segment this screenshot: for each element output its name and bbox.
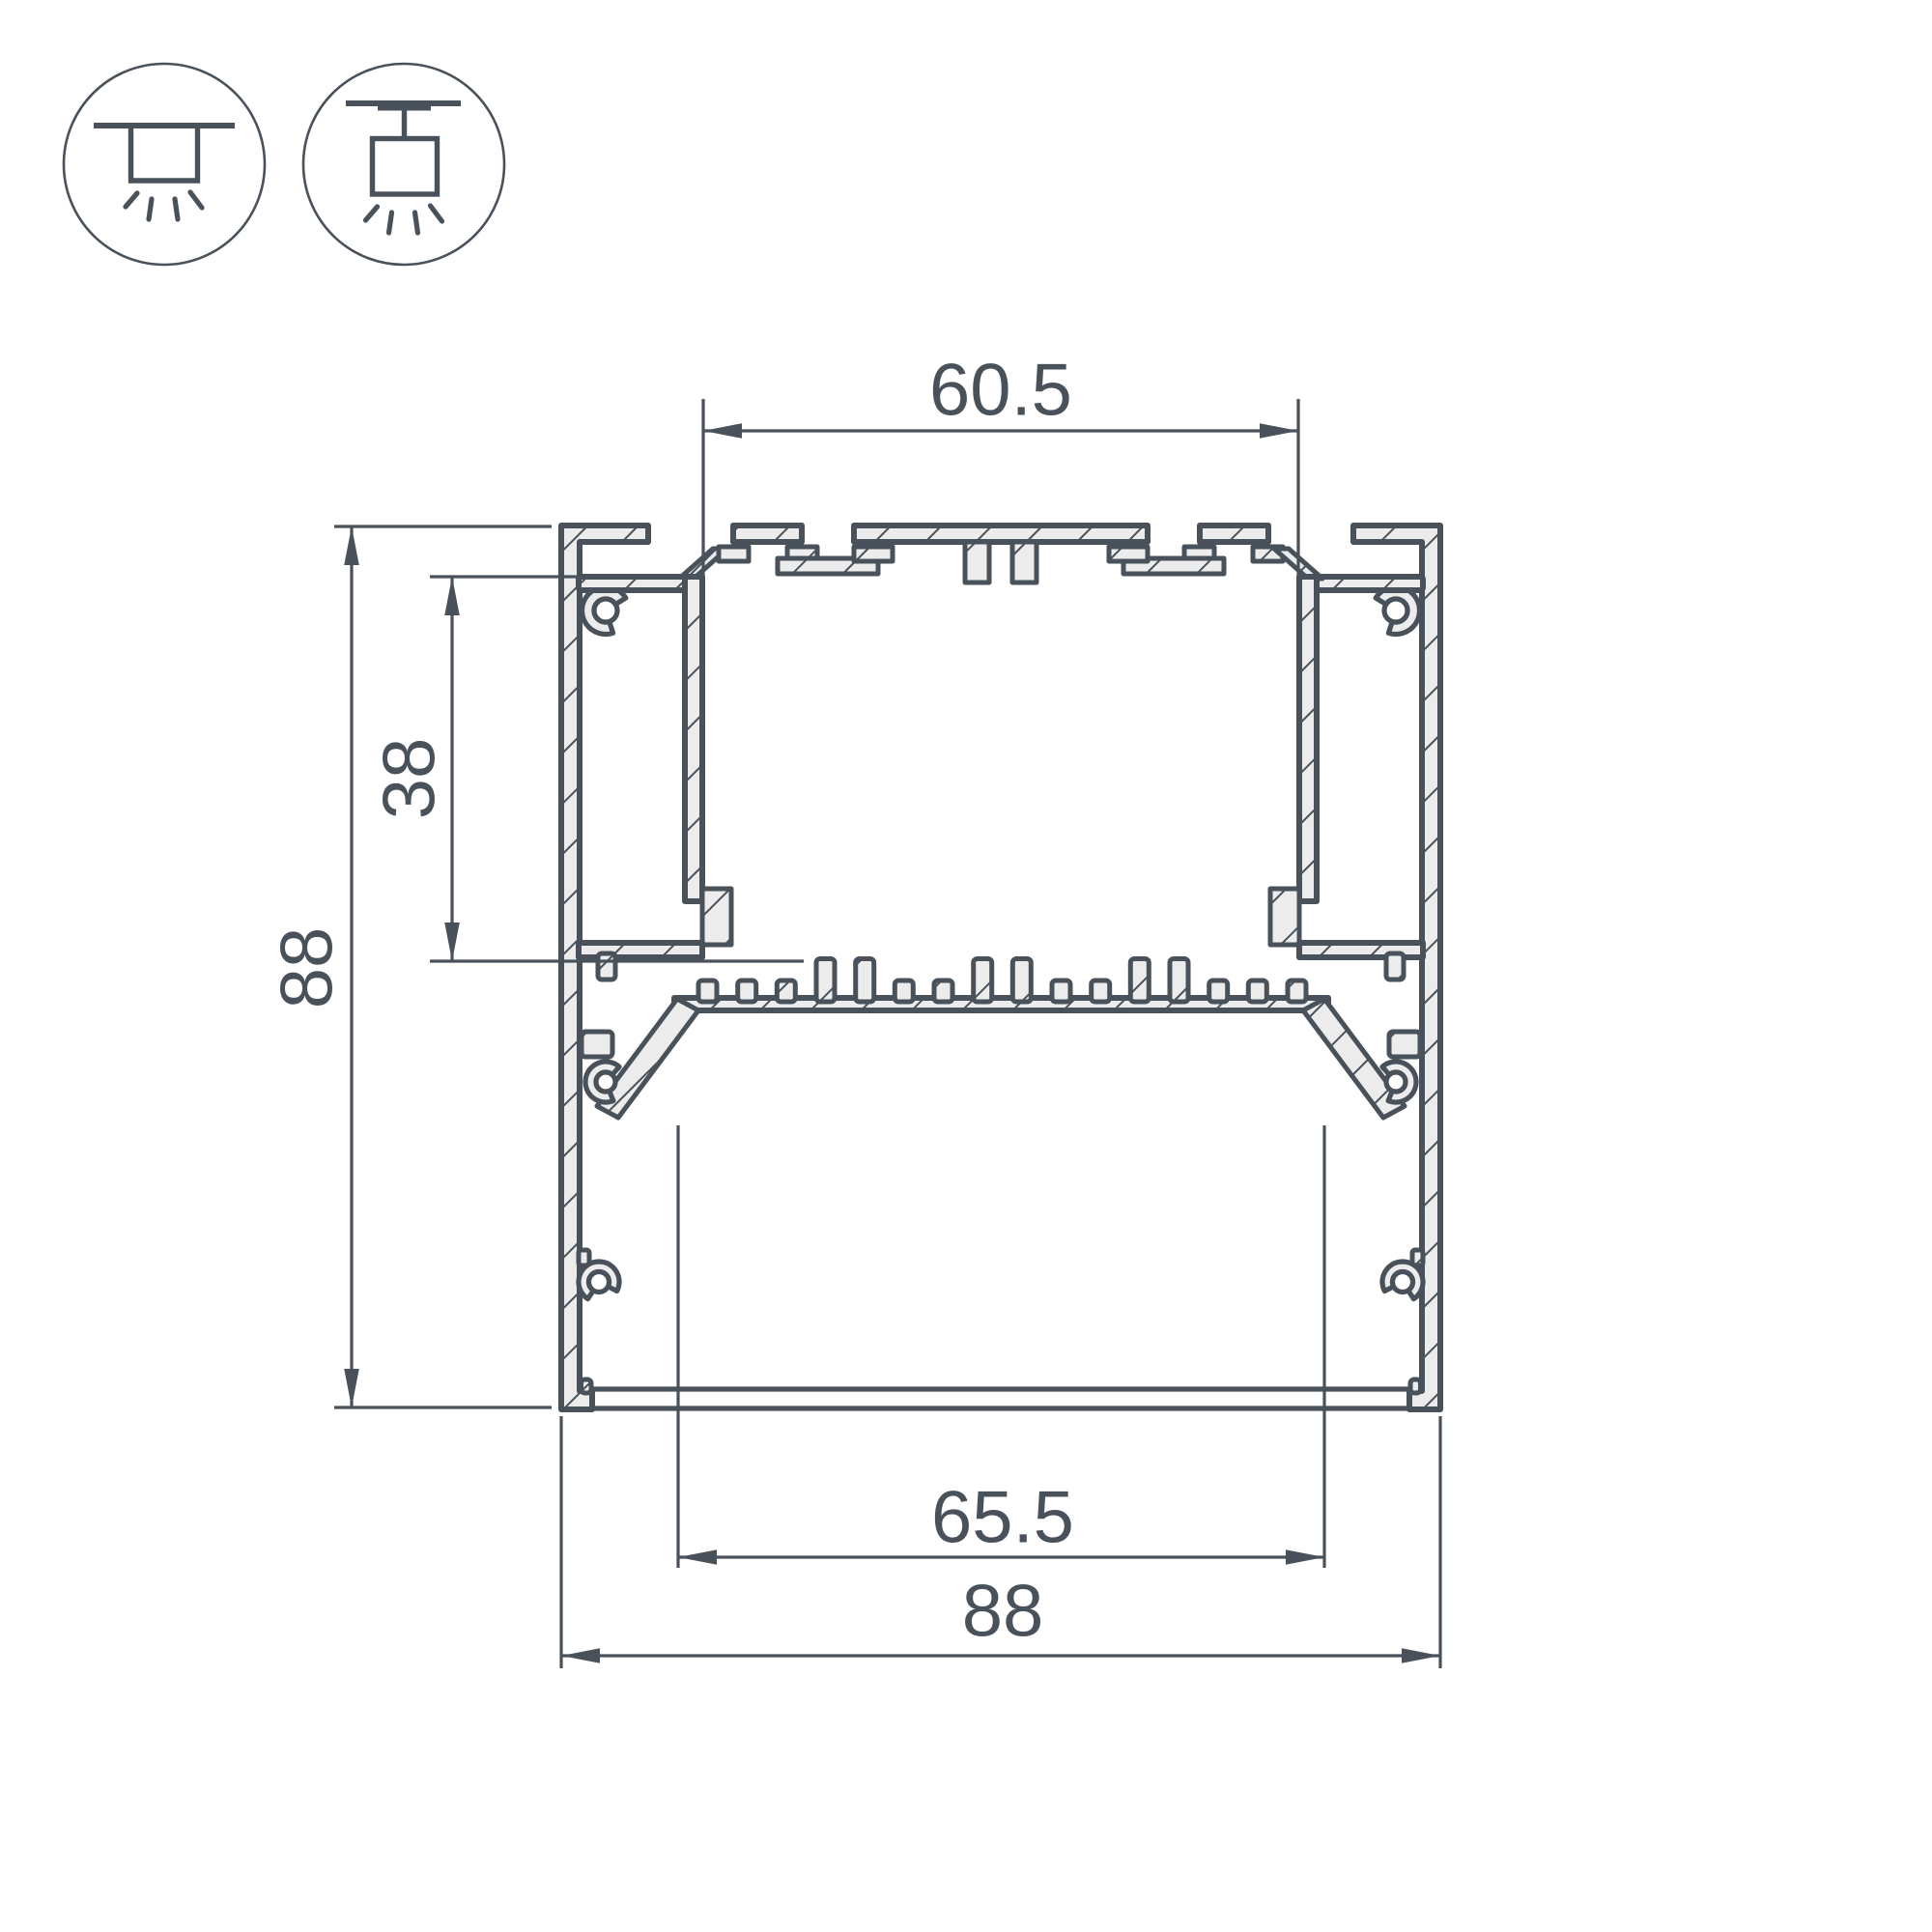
svg-text:38: 38 — [369, 738, 451, 820]
svg-text:65.5: 65.5 — [931, 1477, 1074, 1559]
svg-text:60.5: 60.5 — [929, 350, 1072, 432]
svg-text:88: 88 — [962, 1571, 1044, 1653]
svg-text:88: 88 — [267, 927, 349, 1009]
